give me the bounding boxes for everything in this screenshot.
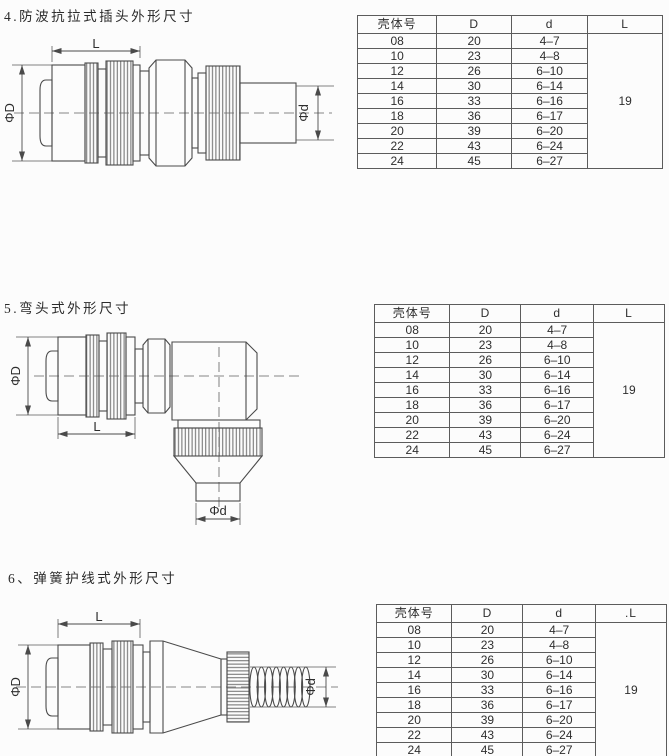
table-cell: 6–16 [512,94,588,109]
table-cell: 18 [375,398,450,413]
table-cell: 36 [452,698,523,713]
table-cell: 36 [437,109,512,124]
col-header-shell-no: 壳体号 [375,305,450,323]
table-cell: 6–20 [523,713,596,728]
col-header-D: D [437,16,512,34]
table-cell: 36 [450,398,521,413]
table-cell: 23 [437,49,512,64]
table-cell: 24 [377,743,452,756]
table-cell: 6–14 [521,368,594,383]
dim-label-outer-diameter: ΦD [2,103,17,123]
table-cell: 23 [452,638,523,653]
table-cell: 16 [377,683,452,698]
table-cell: 12 [358,64,437,79]
dim-label-outer-diameter: ΦD [8,677,23,697]
elbow-plug-drawing: ΦD L [0,325,340,540]
table-cell: 4–8 [512,49,588,64]
table-cell: 6–17 [523,698,596,713]
table-cell: 26 [450,353,521,368]
table-cell: 20 [358,124,437,139]
table-cell: 20 [452,623,523,638]
table-cell: 43 [450,428,521,443]
table-cell: 6–24 [523,728,596,743]
col-header-L: L [593,305,664,323]
table-cell: 6–10 [521,353,594,368]
table-cell: 10 [375,338,450,353]
table-cell: 22 [375,428,450,443]
table-cell: 22 [358,139,437,154]
table-header-row: 壳体号 D d L [375,305,665,323]
plug-body-outline [46,333,262,501]
table-cell: 24 [358,154,437,169]
table-cell: 6–17 [521,398,594,413]
table-cell: 18 [377,698,452,713]
table-cell: 14 [377,668,452,683]
table-cell: 43 [452,728,523,743]
table-cell: 14 [358,79,437,94]
dim-label-outer-diameter: ΦD [8,366,23,386]
table-cell: 20 [375,413,450,428]
dim-label-length: L [92,38,99,51]
table-cell: 26 [437,64,512,79]
table-cell: 33 [450,383,521,398]
table-cell: 6–14 [512,79,588,94]
merged-L-cell: 19 [588,34,663,169]
dim-label-length: L [93,419,100,434]
col-header-L: L [588,16,663,34]
table-cell: 6–24 [521,428,594,443]
col-header-shell-no: 壳体号 [377,605,452,623]
dim-label-inner-diameter: Φd [296,104,311,122]
table-cell: 12 [375,353,450,368]
table-cell: 6–27 [523,743,596,756]
section5-title: 5.弯头式外形尺寸 [4,297,131,317]
table-cell: 6–20 [521,413,594,428]
table-cell: 6–27 [521,443,594,458]
table-cell: 6–14 [523,668,596,683]
dimension-inner-diameter: Φd [196,503,240,525]
table-cell: 4–7 [523,623,596,638]
table-cell: 08 [375,323,450,338]
dim-label-inner-diameter: Φd [209,503,227,518]
spring-guard-plug-drawing: L ΦD [0,608,360,754]
table-cell: 10 [358,49,437,64]
table-cell: 45 [450,443,521,458]
table-cell: 4–7 [512,34,588,49]
table-cell: 30 [452,668,523,683]
table-cell: 26 [452,653,523,668]
table-cell: 08 [377,623,452,638]
table-cell: 24 [375,443,450,458]
col-header-L: .L [595,605,666,623]
col-header-d: d [523,605,596,623]
table-cell: 4–8 [521,338,594,353]
table-cell: 39 [437,124,512,139]
table-cell: 18 [358,109,437,124]
dimension-length: L [58,609,140,638]
dimension-length: L [58,417,135,439]
dim-label-inner-diameter: Φd [303,678,318,696]
table-cell: 6–24 [512,139,588,154]
table-row: 08204–719 [375,323,665,338]
table-cell: 45 [437,154,512,169]
table-cell: 6–10 [523,653,596,668]
straight-plug-drawing: L ΦD Φd [0,38,340,188]
table-cell: 23 [450,338,521,353]
section5-dimension-table: 壳体号 D d L 08204–71910234–812266–1014306–… [374,304,665,458]
col-header-shell-no: 壳体号 [358,16,437,34]
table-cell: 16 [358,94,437,109]
col-header-D: D [452,605,523,623]
section4-title: 4.防波抗拉式插头外形尺寸 [4,5,195,25]
table-cell: 10 [377,638,452,653]
table-cell: 20 [377,713,452,728]
dimension-length: L [52,38,140,62]
col-header-d: d [512,16,588,34]
document-page: 4.防波抗拉式插头外形尺寸 L ΦD [0,0,669,756]
table-cell: 14 [375,368,450,383]
table-cell: 12 [377,653,452,668]
table-cell: 30 [450,368,521,383]
table-cell: 6–20 [512,124,588,139]
table-cell: 4–7 [521,323,594,338]
table-cell: 6–16 [521,383,594,398]
col-header-d: d [521,305,594,323]
table-header-row: 壳体号 D d .L [377,605,667,623]
section4-dimension-table: 壳体号 D d L 08204–71910234–812266–1014306–… [357,15,663,169]
table-cell: 33 [452,683,523,698]
table-cell: 6–27 [512,154,588,169]
table-cell: 45 [452,743,523,756]
section6-title: 6、弹簧护线式外形尺寸 [8,567,177,587]
table-cell: 08 [358,34,437,49]
table-cell: 6–16 [523,683,596,698]
table-cell: 39 [452,713,523,728]
table-cell: 4–8 [523,638,596,653]
table-cell: 20 [450,323,521,338]
table-row: 08204–719 [358,34,663,49]
table-row: 08204–719 [377,623,667,638]
table-cell: 33 [437,94,512,109]
table-cell: 6–17 [512,109,588,124]
table-cell: 22 [377,728,452,743]
section6-dimension-table: 壳体号 D d .L 08204–71910234–812266–1014306… [376,604,667,756]
col-header-D: D [450,305,521,323]
merged-L-cell: 19 [593,323,664,458]
merged-L-cell: 19 [595,623,666,756]
table-cell: 43 [437,139,512,154]
table-cell: 20 [437,34,512,49]
table-cell: 30 [437,79,512,94]
table-cell: 6–10 [512,64,588,79]
table-cell: 16 [375,383,450,398]
table-cell: 39 [450,413,521,428]
table-header-row: 壳体号 D d L [358,16,663,34]
dim-label-length: L [95,609,102,624]
